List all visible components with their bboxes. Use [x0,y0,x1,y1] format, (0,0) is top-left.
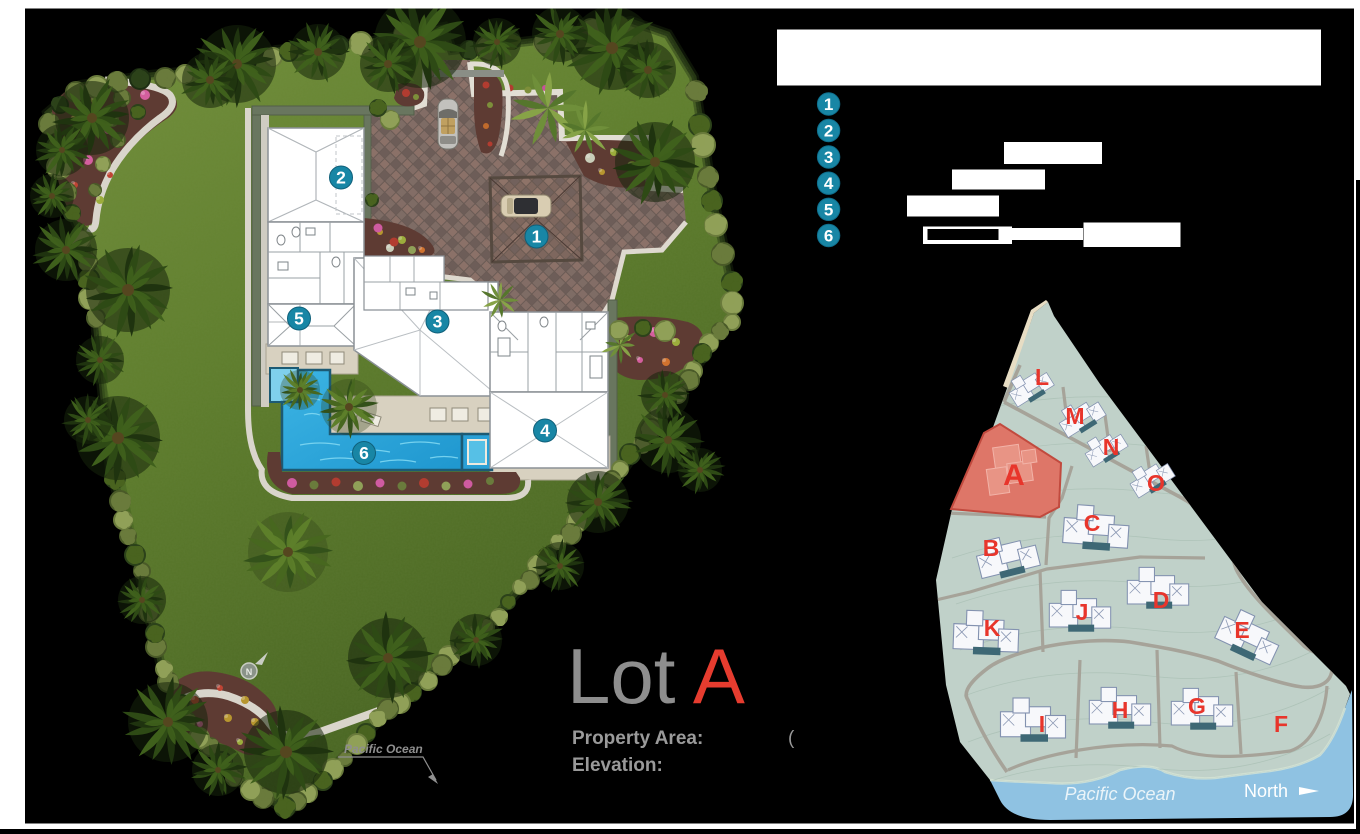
svg-text:6: 6 [359,443,369,463]
svg-text:D: D [1153,587,1170,613]
svg-text:2: 2 [336,168,346,188]
svg-text:J: J [1076,599,1089,625]
svg-text:G: G [1188,693,1206,719]
svg-text:North: North [1244,781,1288,801]
svg-text:5: 5 [294,309,304,329]
svg-text:A: A [1003,459,1025,492]
svg-text:B: B [983,535,1000,561]
svg-text:Elevation:: Elevation: [572,755,663,776]
svg-text:H: H [1112,697,1129,723]
svg-text:O: O [1147,470,1165,496]
svg-text:Lot A: Lot A [567,632,745,720]
svg-text:K: K [984,615,1001,641]
svg-text:5: 5 [824,200,833,219]
svg-text:E: E [1234,617,1249,643]
svg-text:1: 1 [824,95,833,114]
svg-text:3: 3 [824,148,833,167]
svg-text:3: 3 [433,312,443,332]
svg-text:Pacific Ocean: Pacific Ocean [344,742,423,756]
svg-text:Pacific Ocean: Pacific Ocean [1064,784,1175,804]
svg-text:4: 4 [824,174,834,193]
svg-text:Property Area:: Property Area: [572,728,703,749]
svg-text:C: C [1084,510,1101,536]
svg-text:1: 1 [532,227,542,247]
svg-text:2: 2 [824,122,833,141]
svg-text:L: L [1035,364,1049,390]
svg-text:M: M [1065,403,1084,429]
svg-text:I: I [1039,711,1045,737]
svg-text:N: N [1103,434,1120,460]
svg-text:6: 6 [824,227,833,246]
svg-text:N: N [246,667,253,677]
svg-text:(: ( [788,728,795,749]
svg-text:F: F [1274,711,1288,737]
svg-text:4: 4 [540,421,550,441]
